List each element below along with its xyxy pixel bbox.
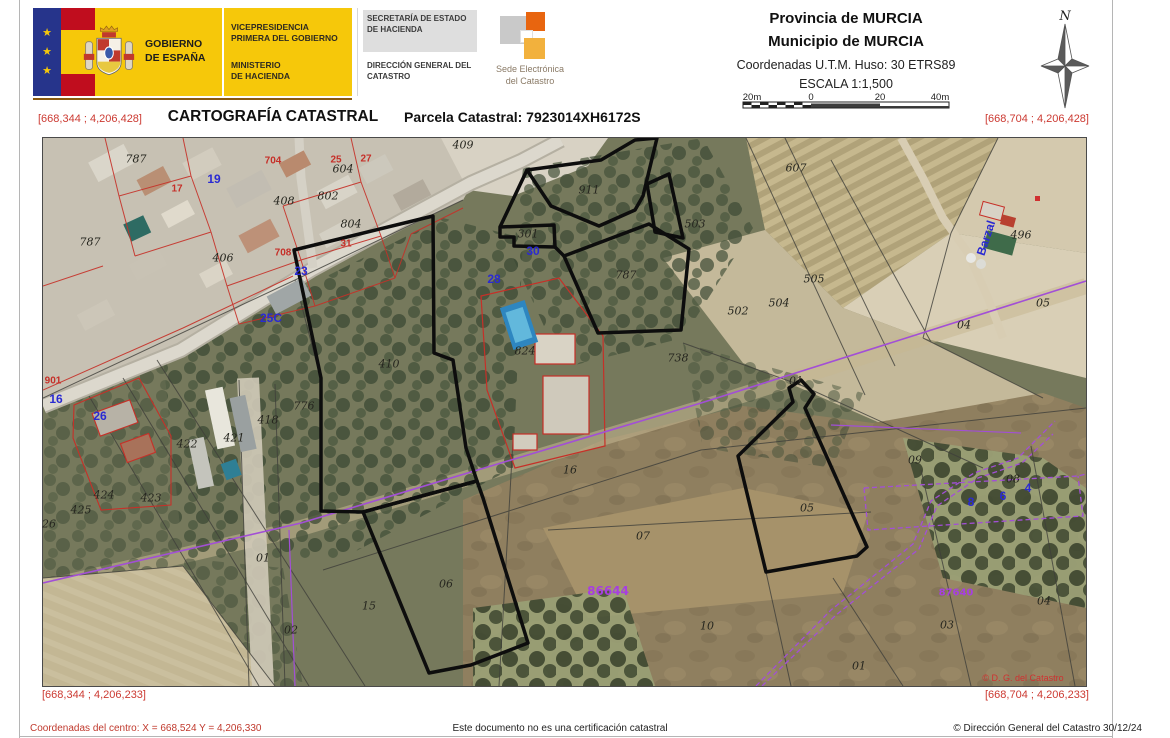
- map-label: 31: [340, 239, 351, 250]
- center-coordinates-label: Coordenadas del centro: X = 668,524 Y = …: [30, 723, 261, 734]
- vicepresidencia-label: VICEPRESIDENCIA PRIMERA DEL GOBIERNO: [231, 22, 349, 45]
- scale-bar: 20m 0 20 40m: [742, 92, 950, 110]
- map-label: 02: [284, 624, 298, 637]
- map-label: 408: [274, 195, 295, 208]
- page-frame-bottom: [19, 736, 1113, 737]
- logo-separator: [222, 8, 224, 96]
- map-label: 04: [1037, 595, 1051, 608]
- map-label: 787: [80, 236, 101, 249]
- sede-yellow-square-icon: [524, 38, 545, 59]
- direccion-label: DIRECCIÓN GENERAL DEL CATASTRO: [367, 60, 477, 82]
- map-label: 4: [1025, 481, 1032, 495]
- header-divider: [357, 8, 358, 96]
- map-label: 27: [360, 154, 371, 165]
- cadastral-document-page: ★★★ GOBIERNO DE ESPAÑA VICEPRESIDENCIA P: [0, 0, 1170, 738]
- ministerio-label: MINISTERIO DE HACIENDA: [231, 60, 349, 83]
- coat-of-arms-icon: [83, 23, 135, 83]
- map-label: 28: [487, 272, 500, 286]
- map-label: 09: [908, 454, 922, 467]
- page-frame-left: [19, 0, 20, 738]
- map-label: 6: [1000, 489, 1007, 503]
- map-label: 607: [786, 162, 807, 175]
- map-label: 425: [71, 504, 92, 517]
- map-label: 08: [1006, 473, 1020, 486]
- map-label: 421: [224, 432, 245, 445]
- map-label: 301: [518, 228, 539, 241]
- escala-label: ESCALA 1:1,500: [690, 77, 1002, 91]
- secretaria-label: SECRETARÍA DE ESTADO DE HACIENDA: [363, 10, 477, 52]
- map-label: 422: [177, 438, 198, 451]
- map-label: 05: [800, 502, 814, 515]
- map-label: 503: [685, 218, 706, 231]
- map-label: 424: [94, 489, 115, 502]
- map-label: 738: [668, 352, 689, 365]
- sede-electronica-label: Sede Electrónica del Catastro: [478, 64, 582, 87]
- svg-text:40m: 40m: [931, 92, 950, 103]
- map-label: 16: [563, 464, 577, 477]
- corner-coord-bottom-left: [668,344 ; 4,206,233]: [42, 689, 146, 701]
- government-logo: ★★★ GOBIERNO DE ESPAÑA VICEPRESIDENCIA P: [33, 8, 352, 96]
- map-label: 01: [852, 660, 866, 673]
- corner-coord-top-right: [668,704 ; 4,206,428]: [985, 113, 1089, 125]
- map-label: 17: [171, 184, 182, 195]
- map-label: 30: [526, 244, 539, 258]
- provincia-label: Provincia de MURCIA: [690, 10, 1002, 27]
- map-label: 804: [341, 218, 362, 231]
- map-label: 25: [330, 155, 341, 166]
- map-label: 8: [968, 495, 975, 509]
- map-label: 01: [256, 552, 270, 565]
- map-label: 708: [275, 248, 292, 259]
- svg-text:N: N: [1058, 9, 1071, 24]
- map-label: 87640: [939, 588, 974, 599]
- disclaimer-label: Este documento no es una certificación c…: [330, 723, 790, 734]
- svg-text:0: 0: [808, 92, 813, 103]
- map-label: 10: [700, 620, 714, 633]
- page-frame-right: [1112, 0, 1113, 738]
- map-label: 787: [126, 153, 147, 166]
- map-label: 04: [957, 319, 971, 332]
- map-label: 504: [769, 297, 790, 310]
- map-label: © D. G. del Catastro: [982, 673, 1063, 683]
- sede-electronica-logo: Sede Electrónica del Catastro: [478, 12, 582, 94]
- map-label: 01: [789, 375, 803, 388]
- svg-text:20m: 20m: [743, 92, 762, 103]
- logo-underline: [33, 98, 352, 100]
- municipio-label: Municipio de MURCIA: [690, 33, 1002, 50]
- map-label: 505: [804, 273, 825, 286]
- map-label: 802: [318, 190, 339, 203]
- map-label: 410: [379, 358, 400, 371]
- map-label: 05: [1036, 297, 1050, 310]
- north-arrow: N: [1037, 8, 1093, 112]
- map-label: 704: [265, 156, 282, 167]
- map-label: 409: [453, 139, 474, 152]
- map-label: 23: [294, 264, 307, 278]
- map-label: 07: [636, 530, 650, 543]
- map-label: 502: [728, 305, 749, 318]
- map-label: 423: [141, 492, 162, 505]
- corner-coord-bottom-right: [668,704 ; 4,206,233]: [985, 689, 1089, 701]
- map-label: 787: [616, 269, 637, 282]
- map-label: 901: [45, 376, 62, 387]
- map-label: 26: [42, 518, 56, 531]
- map-label: 86644: [587, 584, 629, 598]
- map-label: 406: [213, 252, 234, 265]
- parcel-reference: Parcela Catastral: 7923014XH6172S: [404, 109, 641, 125]
- map-label: 16: [49, 392, 62, 406]
- document-title: CARTOGRAFÍA CATASTRAL: [123, 108, 423, 126]
- svg-text:20: 20: [875, 92, 886, 103]
- map-label: 25C: [260, 311, 282, 325]
- eu-stars-band: ★★★: [33, 8, 61, 96]
- map-label: 15: [362, 600, 376, 613]
- map-label: 604: [333, 163, 354, 176]
- map-label: 26: [93, 409, 106, 423]
- map-label-layer: 4099115033017876075055045024967384108241…: [43, 138, 1086, 686]
- map-label: 03: [940, 619, 954, 632]
- map-label: 496: [1011, 229, 1032, 242]
- map-label: 418: [258, 414, 279, 427]
- copyright-label: © Dirección General del Catastro 30/12/2…: [953, 723, 1142, 734]
- map-metadata-header: Provincia de MURCIA Municipio de MURCIA …: [690, 6, 1002, 106]
- cadastral-map[interactable]: 4099115033017876075055045024967384108241…: [42, 137, 1087, 687]
- map-label: 776: [294, 400, 315, 413]
- map-label: Barzal: [974, 219, 998, 258]
- map-label: 824: [515, 345, 536, 358]
- gobierno-title: GOBIERNO DE ESPAÑA: [145, 38, 205, 65]
- map-label: 06: [439, 578, 453, 591]
- sede-orange-square-icon: [526, 12, 545, 31]
- map-label: 19: [207, 172, 220, 186]
- map-label: 911: [579, 184, 600, 197]
- utm-label: Coordenadas U.T.M. Huso: 30 ETRS89: [690, 58, 1002, 72]
